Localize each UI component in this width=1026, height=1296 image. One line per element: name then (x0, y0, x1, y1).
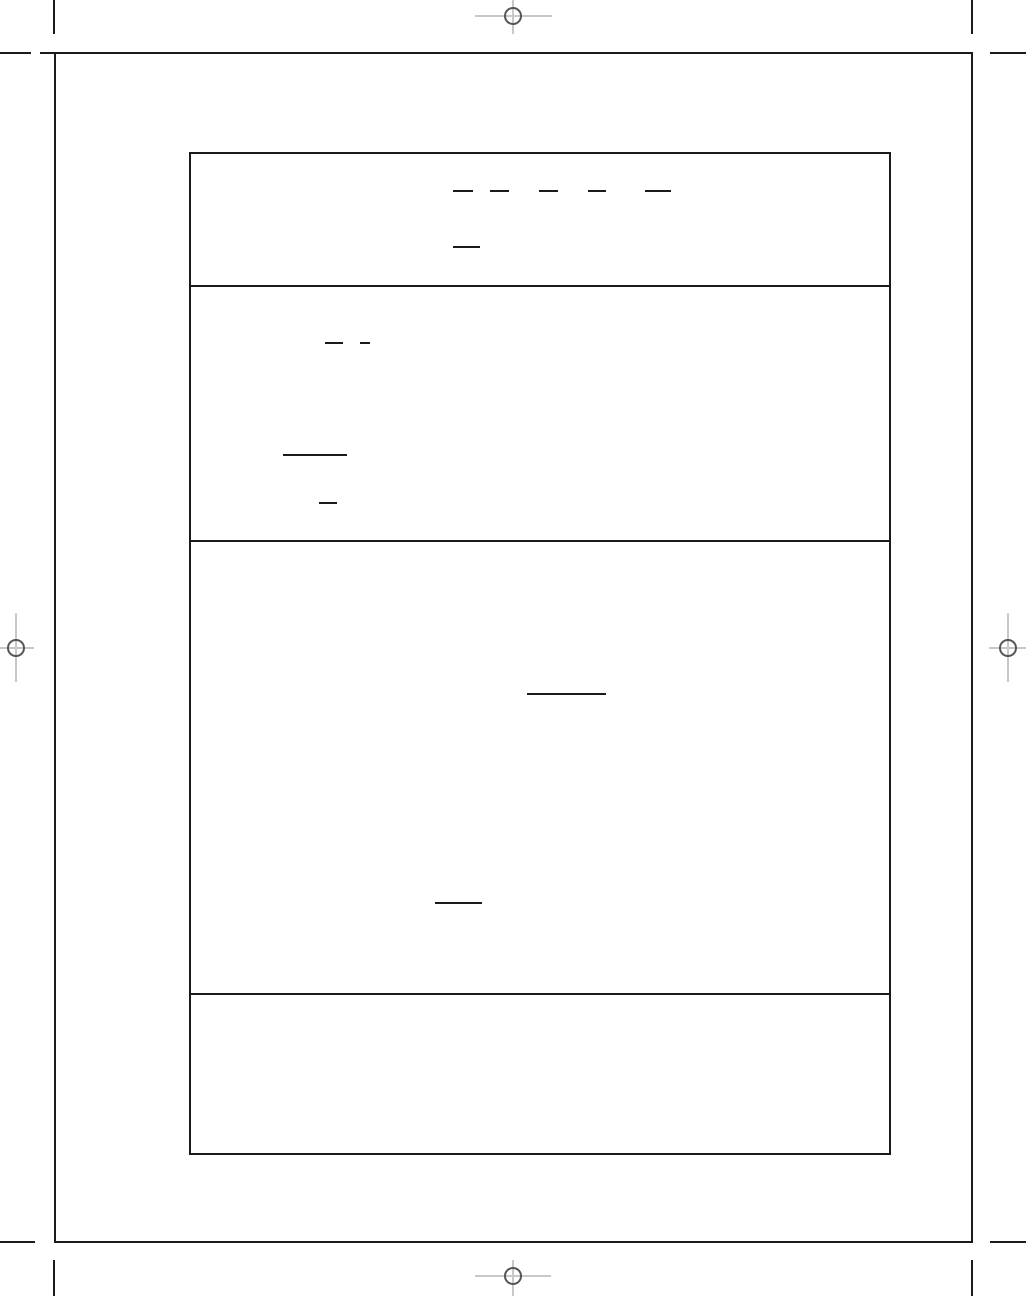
registration-circle-top-center (504, 7, 522, 25)
blank-fill-line-section-2-1 (325, 342, 343, 344)
blank-fill-line-section-1-4 (588, 190, 606, 192)
blank-fill-line-section-3-1 (527, 693, 606, 695)
registration-circle-bottom-center (504, 1267, 522, 1285)
printed-page-canvas (0, 0, 1026, 1296)
crop-mark-bottom-right-horizontal (990, 1241, 1026, 1243)
blank-fill-line-section-3-2 (435, 902, 482, 904)
blank-fill-line-section-1-5 (645, 190, 671, 192)
crop-mark-top-left-horizontal (0, 52, 31, 54)
blank-fill-line-section-1-1 (453, 190, 473, 192)
crop-mark-top-right-horizontal (990, 52, 1026, 54)
registration-circle-right-middle (999, 639, 1017, 657)
blank-fill-line-section-2-2 (360, 342, 370, 344)
form-section-divider-3 (191, 993, 889, 995)
blank-fill-line-section-2-3 (283, 454, 347, 456)
blank-fill-line-section-1-3 (539, 190, 558, 192)
form-section-divider-1 (191, 285, 889, 287)
crop-mark-bottom-left-vertical (53, 1260, 55, 1296)
crop-mark-bottom-left-horizontal (0, 1241, 35, 1243)
crop-mark-bottom-right-vertical (971, 1260, 973, 1296)
form-section-divider-2 (191, 540, 889, 542)
registration-circle-left-middle (7, 639, 25, 657)
form-outline-box (189, 152, 891, 1155)
blank-fill-line-section-2-4 (319, 502, 337, 504)
blank-fill-line-section-1-2 (490, 190, 509, 192)
crop-mark-top-right-vertical (971, 0, 973, 34)
crop-mark-top-left-vertical (53, 0, 55, 34)
blank-fill-line-section-1-6 (453, 246, 480, 248)
